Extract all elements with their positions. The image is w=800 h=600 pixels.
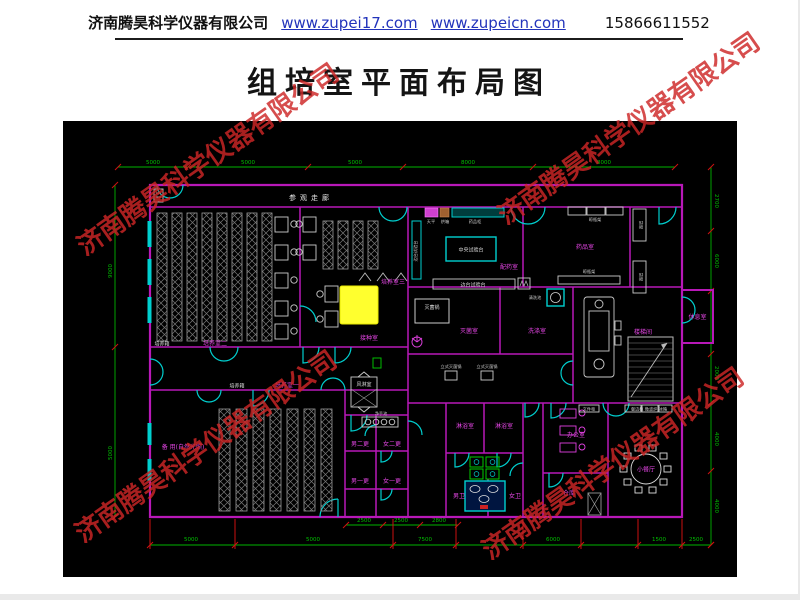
label-room1: 培养室一 bbox=[275, 382, 299, 390]
autoclave-machine bbox=[584, 297, 621, 377]
label-wash-sink: 清洗池 bbox=[529, 294, 542, 301]
label-autoclave-1: 立式灭菌锅 bbox=[441, 363, 462, 370]
label-storage: 仓库 bbox=[563, 489, 575, 497]
dim-top-5: 8000 bbox=[597, 160, 611, 166]
office-furniture bbox=[560, 405, 601, 515]
label-spare: 备 用(自然光照) bbox=[162, 443, 205, 451]
label-room3: 培养室三 bbox=[381, 278, 405, 286]
label-air-shower: 风淋室 bbox=[356, 381, 371, 388]
label-w1: 女一更 bbox=[383, 477, 401, 485]
dim-top-4: 8000 bbox=[461, 160, 475, 166]
dim-right-1: 2700 bbox=[713, 194, 719, 208]
label-shower-2: 淋浴室 bbox=[495, 422, 513, 430]
label-incubator-2: 培养箱 bbox=[229, 383, 244, 390]
dining-furniture bbox=[620, 405, 672, 493]
dim-bottom-5: 1500 bbox=[652, 537, 666, 543]
label-hand-sink: 净手池 bbox=[375, 410, 388, 417]
label-shower-1: 淋浴室 bbox=[456, 422, 474, 430]
label-m1: 男一更 bbox=[351, 478, 369, 485]
dim-right-5: 4000 bbox=[713, 499, 719, 513]
label-stairwell: 楼梯间 bbox=[634, 328, 652, 336]
label-dry-rack-1: 晾瓶架 bbox=[589, 216, 602, 223]
page-title: 组培室平面布局图 bbox=[0, 58, 798, 102]
label-med-cabinet: 药品柜 bbox=[469, 218, 482, 225]
label-wt: 女卫 bbox=[509, 492, 521, 500]
dim-sub-3: 2800 bbox=[432, 518, 446, 524]
dim-left-1: 9000 bbox=[108, 264, 114, 278]
label-dining: 小餐厅 bbox=[637, 466, 655, 474]
label-autoclave-2: 立式灭菌锅 bbox=[477, 363, 498, 370]
racks-room3 bbox=[323, 221, 378, 269]
label-dry-rack-2: 晾瓶架 bbox=[583, 268, 596, 275]
label-prep: 配药室 bbox=[500, 263, 518, 271]
label-m2: 男二更 bbox=[351, 441, 369, 448]
air-shower bbox=[351, 372, 398, 427]
dim-right-2: 6000 bbox=[713, 254, 719, 268]
label-steril-room: 灭菌室 bbox=[460, 327, 478, 335]
label-side-bench-2: 边台试验台 bbox=[412, 241, 419, 262]
dim-sub-2: 2500 bbox=[394, 518, 408, 524]
dim-sub-1: 2500 bbox=[357, 518, 371, 524]
highlight-square bbox=[340, 286, 378, 324]
label-rest: 休息室 bbox=[688, 313, 706, 321]
label-dining-cab: 餐边柜 微波炉 冰箱 bbox=[631, 406, 667, 413]
label-w2: 女二更 bbox=[383, 440, 401, 448]
stairs bbox=[628, 337, 673, 401]
label-side-bench-1: 边台试验台 bbox=[460, 282, 485, 289]
label-central-bench: 中央试验台 bbox=[458, 247, 483, 254]
dim-bottom-6: 2500 bbox=[689, 537, 703, 543]
label-steril-pot: 灭菌锅 bbox=[424, 304, 439, 311]
label-balance: 天平 bbox=[427, 219, 435, 225]
dim-top-1: 5000 bbox=[146, 160, 160, 166]
label-oven: 烘箱 bbox=[441, 218, 449, 225]
racks-room2 bbox=[157, 213, 272, 341]
dim-bottom-3: 7500 bbox=[418, 537, 432, 543]
label-wash-room: 洗涤室 bbox=[528, 327, 546, 335]
floorplan-canvas: 5000 5000 5000 8000 8000 9000 5000 2700 … bbox=[63, 121, 737, 577]
dim-left-2: 5000 bbox=[108, 446, 114, 460]
header-divider bbox=[115, 38, 683, 40]
link-zupei17[interactable]: www.zupei17.com bbox=[281, 14, 417, 32]
dim-right-3: 2000 bbox=[713, 366, 719, 380]
header: 济南腾昊科学仪器有限公司 www.zupei17.com www.zupeicn… bbox=[0, 12, 798, 33]
label-office: 办公室 bbox=[567, 431, 585, 439]
label-shelf-1: 货架 bbox=[638, 221, 645, 229]
link-zupeicn[interactable]: www.zupeicn.com bbox=[431, 14, 566, 32]
dim-top-2: 5000 bbox=[241, 160, 255, 166]
dim-bottom-4: 6000 bbox=[546, 537, 560, 543]
label-incubator-1: 培养箱 bbox=[154, 341, 169, 348]
dim-bottom-2: 5000 bbox=[306, 537, 320, 543]
company-name: 济南腾昊科学仪器有限公司 bbox=[88, 14, 268, 32]
dim-right-4: 4000 bbox=[713, 432, 719, 446]
page: 济南腾昊科学仪器有限公司 www.zupei17.com www.zupeicn… bbox=[0, 0, 798, 594]
phone-number: 15866611552 bbox=[605, 14, 710, 32]
label-room2: 培养室二 bbox=[203, 340, 227, 348]
label-med-room: 药品室 bbox=[576, 243, 594, 251]
label-shelf-2: 货架 bbox=[638, 273, 645, 281]
racks-room1 bbox=[219, 409, 332, 511]
label-inoculation: 接种室 bbox=[360, 334, 378, 342]
label-cabinet: 文件柜 bbox=[583, 406, 596, 413]
dim-top-3: 5000 bbox=[348, 160, 362, 166]
label-corridor: 参观走廊 bbox=[289, 193, 333, 202]
floorplan-drawing: 5000 5000 5000 8000 8000 9000 5000 2700 … bbox=[63, 121, 737, 577]
label-mt: 男卫 bbox=[453, 493, 465, 500]
toilet-fixtures bbox=[465, 457, 505, 511]
storage-racks bbox=[558, 207, 646, 293]
dim-bottom-1: 5000 bbox=[184, 537, 198, 543]
